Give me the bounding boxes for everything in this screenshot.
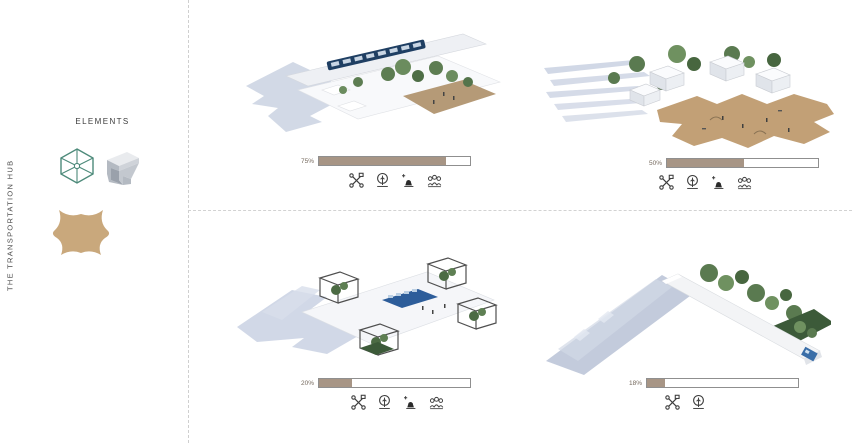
program-icons-row bbox=[658, 174, 753, 191]
option-card-top-right: 50% bbox=[520, 0, 852, 210]
progress-bar-row: 18% bbox=[612, 377, 799, 389]
percent-label: 50% bbox=[632, 160, 666, 167]
progress-fill bbox=[647, 379, 665, 387]
linear-bar-render bbox=[544, 252, 831, 376]
progress-fill bbox=[667, 159, 744, 167]
people-icon bbox=[426, 172, 443, 189]
bench-icon bbox=[400, 172, 417, 189]
wireframe-cube-icon bbox=[57, 146, 97, 186]
drone-icon bbox=[664, 394, 681, 411]
elements-heading: ELEMENTS bbox=[55, 117, 150, 126]
option-card-bottom-right: 18% bbox=[520, 210, 852, 443]
progress-fill bbox=[319, 379, 352, 387]
tree-icon bbox=[376, 394, 393, 411]
bench-icon bbox=[710, 174, 727, 191]
drone-icon bbox=[658, 174, 675, 191]
plaza-blob-icon bbox=[50, 208, 112, 258]
progress-track bbox=[318, 156, 471, 166]
presentation-board: THE TRANSPORTATION HUB ELEMENTS bbox=[0, 0, 852, 443]
frame-cubes-render bbox=[232, 242, 514, 376]
village-plaza-render bbox=[542, 32, 844, 158]
canopy-hub-render bbox=[238, 24, 506, 154]
progress-bar-row: 75% bbox=[284, 155, 471, 167]
program-icons-row bbox=[348, 172, 443, 189]
progress-track bbox=[318, 378, 471, 388]
progress-fill bbox=[319, 157, 446, 165]
percent-label: 75% bbox=[284, 158, 318, 165]
board-vertical-title: THE TRANSPORTATION HUB bbox=[2, 140, 18, 310]
option-card-top-left: 75% bbox=[188, 0, 520, 210]
tree-icon bbox=[684, 174, 701, 191]
progress-track bbox=[646, 378, 799, 388]
people-icon bbox=[736, 174, 753, 191]
program-icons-row bbox=[350, 394, 445, 411]
folded-plate-icon bbox=[97, 150, 141, 186]
bench-icon bbox=[402, 394, 419, 411]
percent-label: 18% bbox=[612, 380, 646, 387]
tree-icon bbox=[374, 172, 391, 189]
progress-bar-row: 50% bbox=[632, 157, 819, 169]
progress-bar-row: 20% bbox=[284, 377, 471, 389]
progress-track bbox=[666, 158, 819, 168]
program-icons-row bbox=[664, 394, 707, 411]
tree-icon bbox=[690, 394, 707, 411]
people-icon bbox=[428, 394, 445, 411]
option-card-bottom-left: 20% bbox=[188, 210, 520, 443]
drone-icon bbox=[348, 172, 365, 189]
drone-icon bbox=[350, 394, 367, 411]
percent-label: 20% bbox=[284, 380, 318, 387]
